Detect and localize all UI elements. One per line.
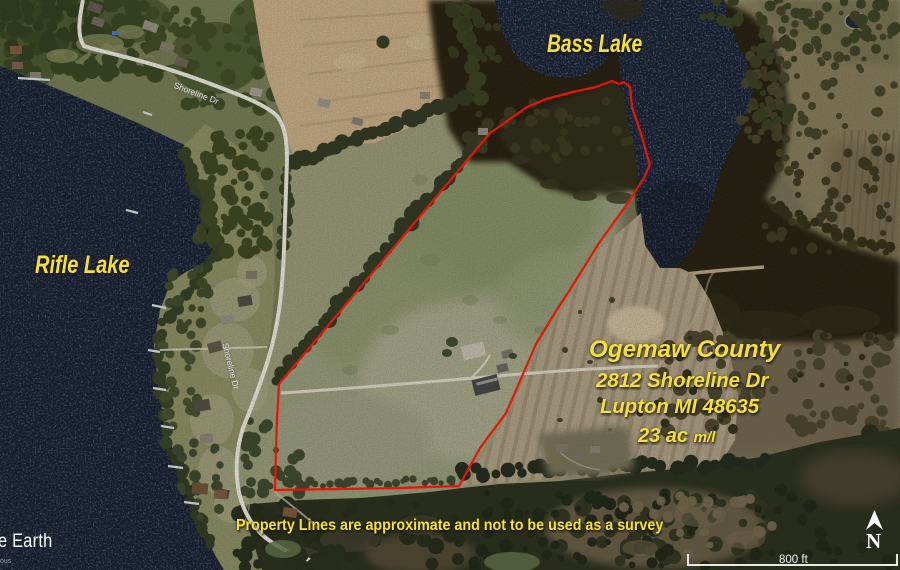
svg-text:800 ft: 800 ft [779, 554, 809, 566]
svg-text:N: N [866, 529, 881, 553]
